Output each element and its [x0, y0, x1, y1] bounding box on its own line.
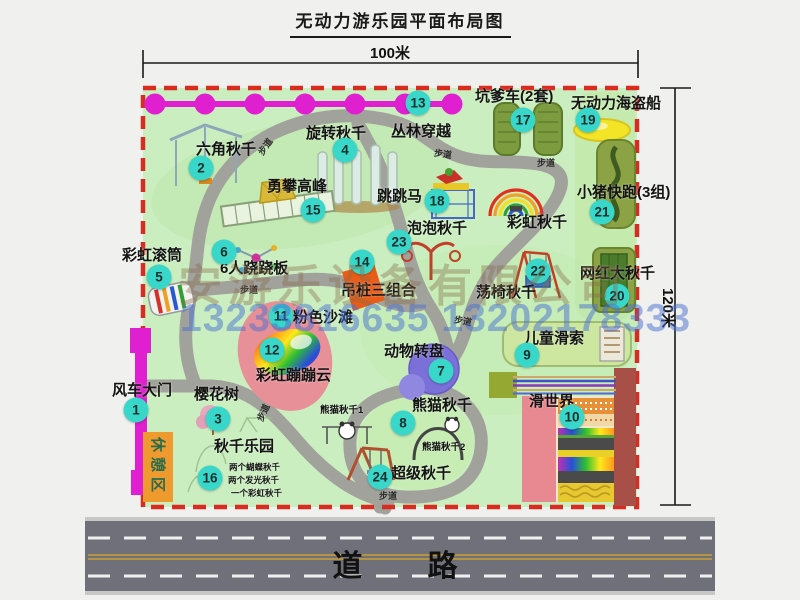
attraction-label-22: 荡椅秋千 — [476, 285, 536, 300]
path-label-6: 步道 — [379, 489, 397, 502]
attraction-badge-9: 9 — [515, 343, 540, 368]
attraction-label-17: 坑爹车(2套) — [475, 89, 553, 104]
rest-area-label: 休憩区 — [148, 437, 169, 497]
attraction-label-13: 丛林穿越 — [391, 124, 451, 139]
path-label-1: 步道 — [433, 146, 453, 161]
attraction-label-x24: 彩虹秋千 — [507, 215, 567, 230]
attraction-badge-3: 3 — [206, 407, 231, 432]
attraction-label-x25: 熊猫秋千1 — [320, 406, 363, 416]
attraction-badge-18: 18 — [425, 189, 450, 214]
attraction-badge-6: 6 — [212, 240, 237, 265]
attraction-label-x27: 两个蝴蝶秋千 — [229, 463, 280, 472]
height-dimension-label: 120米 — [658, 288, 679, 328]
attraction-label-23: 泡泡秋千 — [407, 221, 467, 236]
attraction-badge-24: 24 — [368, 465, 393, 490]
attraction-badge-15: 15 — [301, 198, 326, 223]
attraction-badge-10: 10 — [560, 405, 585, 430]
attraction-label-4: 旋转秋千 — [306, 126, 366, 141]
attraction-label-18: 跳跳马 — [377, 189, 422, 204]
attraction-badge-22: 22 — [526, 259, 551, 284]
attraction-badge-4: 4 — [333, 138, 358, 163]
attraction-badge-11: 11 — [269, 304, 294, 329]
park-layout-poster: 无动力游乐园平面布局图 100米 120米 休憩区 风车大门1六角秋千2樱花树3… — [0, 0, 800, 600]
attraction-badge-16: 16 — [198, 466, 223, 491]
attraction-label-11: 粉色沙滩 — [293, 310, 353, 325]
attraction-badge-13: 13 — [406, 91, 431, 116]
path-label-3: 步道 — [240, 283, 258, 296]
attraction-label-21: 小猪快跑(3组) — [577, 185, 670, 200]
path-label-2: 步道 — [537, 156, 555, 169]
attraction-label-x29: 一个彩虹秋千 — [231, 489, 282, 498]
attraction-label-16: 秋千乐园 — [214, 439, 274, 454]
attraction-label-6: 6人跷跷板 — [220, 261, 288, 276]
attraction-badge-7: 7 — [429, 359, 454, 384]
attraction-badge-19: 19 — [576, 108, 601, 133]
attraction-badge-23: 23 — [387, 230, 412, 255]
attraction-label-20: 网红大秋千 — [580, 266, 655, 281]
attraction-label-8: 熊猫秋千 — [412, 398, 472, 413]
width-dimension-label: 100米 — [370, 42, 410, 63]
attraction-label-2: 六角秋千 — [196, 142, 256, 157]
attraction-label-12: 彩虹蹦蹦云 — [256, 368, 331, 383]
attraction-label-x28: 两个发光秋千 — [228, 476, 279, 485]
attraction-badge-14: 14 — [350, 250, 375, 275]
attraction-badge-5: 5 — [147, 265, 172, 290]
attraction-label-5: 彩虹滚筒 — [122, 248, 182, 263]
attraction-label-14: 吊桩三组合 — [341, 283, 416, 298]
attraction-badge-2: 2 — [189, 156, 214, 181]
attraction-badge-12: 12 — [260, 338, 285, 363]
poster-title: 无动力游乐园平面布局图 — [290, 7, 511, 38]
park-map-graphic — [0, 0, 800, 600]
attraction-label-7: 动物转盘 — [384, 344, 444, 359]
road-label: 道 路 — [0, 541, 800, 585]
attraction-badge-17: 17 — [511, 108, 536, 133]
attraction-label-1: 风车大门 — [112, 383, 172, 398]
attraction-label-24: 超级秋千 — [391, 466, 451, 481]
attraction-label-3: 樱花树 — [194, 387, 239, 402]
attraction-label-15: 勇攀高峰 — [267, 179, 327, 194]
attraction-badge-20: 20 — [605, 284, 630, 309]
attraction-badge-8: 8 — [391, 411, 416, 436]
attraction-badge-21: 21 — [590, 200, 615, 225]
attraction-label-x26: 熊猫秋千2 — [422, 443, 465, 453]
attraction-badge-1: 1 — [124, 398, 149, 423]
poster-title-wrap: 无动力游乐园平面布局图 — [0, 7, 800, 38]
